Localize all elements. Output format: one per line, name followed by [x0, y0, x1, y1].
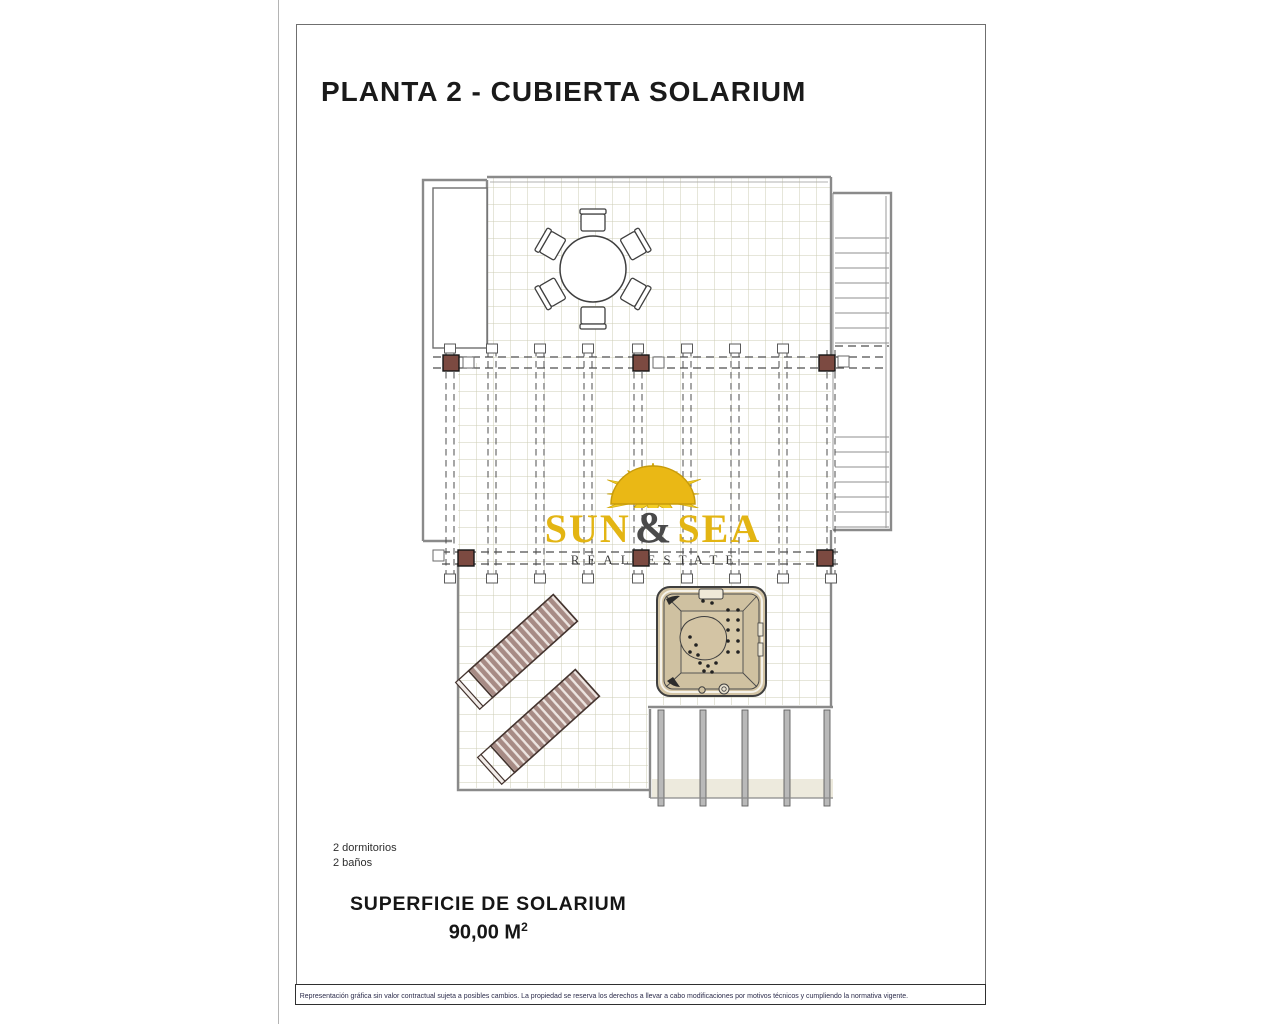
- balcony-post: [784, 710, 790, 806]
- page-title: PLANTA 2 - CUBIERTA SOLARIUM: [321, 76, 806, 108]
- plan-sheet-page: SUN&SEA REAL ESTATE PLANTA 2 - CUBIERTA …: [0, 0, 1280, 1024]
- balcony-post: [742, 710, 748, 806]
- balcony-recess: [650, 710, 833, 806]
- brand-subtitle: REAL ESTATE: [504, 553, 808, 566]
- pergola-post: [633, 355, 649, 371]
- disclaimer-text: Representación gráfica sin valor contrac…: [296, 987, 908, 1004]
- feature-bedrooms: 2 dormitorios: [333, 841, 397, 856]
- skylight: [433, 188, 487, 348]
- balcony-post: [824, 710, 830, 806]
- jacuzzi: [657, 587, 766, 696]
- area-block: SUPERFICIE DE SOLARIUM 90,00 M2: [350, 893, 627, 945]
- area-label: SUPERFICIE DE SOLARIUM: [350, 893, 627, 916]
- pergola-post: [443, 355, 459, 371]
- sun-logo-icon: [583, 442, 723, 508]
- watermark: SUN&SEA REAL ESTATE: [498, 442, 808, 566]
- balcony-post: [658, 710, 664, 806]
- balcony-post: [700, 710, 706, 806]
- dining-table: [560, 236, 626, 302]
- brand-name: SUN&SEA: [498, 506, 808, 550]
- ampersand: &: [631, 503, 678, 552]
- area-superscript: 2: [521, 920, 528, 934]
- area-value: 90,00 M2: [350, 920, 627, 945]
- pergola-post: [817, 550, 833, 566]
- pergola-post: [819, 355, 835, 371]
- feature-bathrooms: 2 baños: [333, 856, 397, 871]
- feature-list: 2 dormitorios 2 baños: [333, 841, 397, 871]
- pergola-post: [458, 550, 474, 566]
- disclaimer-bar: Representación gráfica sin valor contrac…: [295, 984, 986, 1005]
